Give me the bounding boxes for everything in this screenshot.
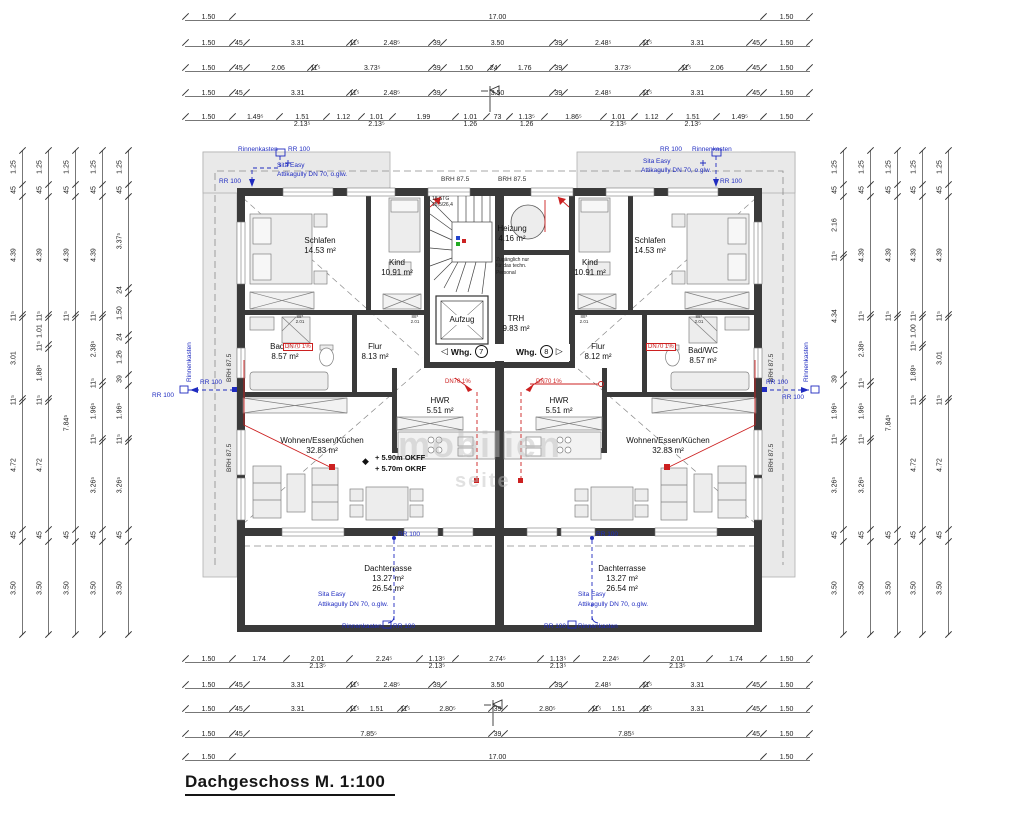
dim-segment: 3.31 [646, 34, 749, 56]
dim-value: 1.25 [11, 160, 18, 174]
room-label-terrasse-left: Dachterrasse13.27 m²26.54 m² [364, 564, 412, 594]
sita-label-top-right: Sita Easy [643, 158, 670, 165]
dim-value: 2.01 [646, 656, 709, 663]
dim-segment: 3.26⁵ [90, 441, 112, 529]
dim-value: 3.50 [443, 682, 552, 689]
gutterbox-label-left-edge: Rinnenkasten [186, 342, 193, 382]
dim-segment: 45 [10, 529, 32, 541]
dim-value: 73 [486, 114, 509, 121]
dim-segment: 1.12 [634, 108, 669, 130]
dim-value: 4.72 [11, 458, 18, 472]
dim-chain-right-3: 1.25 45 4.39 11⁵ 7.84⁵ 45 3.50 [885, 150, 907, 635]
dim-segment: 2.74⁵ [455, 650, 541, 672]
dim-segment: 1.50 [763, 34, 810, 56]
dim-value: 2.48⁵ [564, 682, 642, 689]
dim-chain-left-3: 1.25 45 4.39 11⁵ 7.84⁵ 45 3.50 [63, 150, 85, 635]
dim-value: 1.96⁵ [832, 403, 839, 420]
dim-segment: 45 [90, 184, 112, 196]
dim-subvalue: 2.13⁵ [419, 663, 454, 670]
dim-value: 1.25 [37, 160, 44, 174]
dim-chain-top-1: 1.50 17.00 1.50 [185, 8, 810, 30]
dim-value: 2.80⁵ [404, 706, 492, 713]
rr100-label-right-edge-1: RR 100 [766, 379, 788, 386]
dim-value: 1.50 [763, 65, 810, 72]
dim-segment: 4.72 [36, 401, 58, 528]
dim-value: 45 [64, 531, 71, 539]
dim-segment: 2.01 2.13⁵ [646, 650, 709, 672]
dim-value: 1.49⁵ [716, 114, 763, 121]
dim-value: 1.51 [595, 706, 642, 713]
dim-segment: 1.51 2.13⁵ [279, 108, 326, 130]
dim-value: 45 [911, 531, 918, 539]
dim-value: 3.26⁵ [832, 476, 839, 493]
attika-label-top-right: Attikagully DN 70, o.glw. [641, 167, 711, 174]
dim-value: 2.48⁵ [353, 682, 431, 689]
room-label-flur-right: Flur8.12 m² [584, 342, 611, 362]
dim-value: 3.50 [832, 581, 839, 595]
dim-segment: 4.39 [936, 196, 958, 314]
dim-segment: 2.80⁵ [504, 700, 592, 722]
dim-value: 45 [117, 186, 124, 194]
dim-value: 1.50 [185, 40, 232, 47]
dim-value: 45 [859, 186, 866, 194]
dim-segment: 1.89⁵ [910, 347, 932, 398]
dim-segment: 1.76 [497, 59, 552, 81]
room-label-flur-left: Flur8.13 m² [361, 342, 388, 362]
dim-segment: 2.24⁵ [576, 650, 646, 672]
dim-chain-bottom-3: 1.50 45 3.31 11⁵ 1.51 11⁵ 2.80⁵ 39 2.80⁵… [185, 700, 810, 722]
dim-segment: 45 [63, 184, 85, 196]
dim-value: 1.13⁵ [419, 656, 454, 663]
dim-value: 2.24⁵ [576, 656, 646, 663]
apartment-7-tag: ◁ Whg. 7 [441, 345, 488, 358]
dim-value: 4.39 [937, 248, 944, 262]
gutterbox-label-top-right: Rinnenkasten [692, 146, 732, 153]
dim-segment: 4.72 [10, 401, 32, 528]
dim-segment: 1.50 [185, 700, 232, 722]
dim-value: 2.16 [832, 218, 839, 232]
dim-value: 3.73⁵ [564, 65, 681, 72]
dim-value: 2.01 [286, 656, 349, 663]
dim-value: 2.48⁵ [564, 40, 642, 47]
dim-segment: 45 [116, 529, 138, 541]
dim-value: 1.26 [117, 350, 124, 364]
dim-value: 1.50 [443, 65, 490, 72]
dim-value: 1.50 [185, 114, 232, 121]
dim-value: 3.50 [937, 581, 944, 595]
dim-value: 3.50 [886, 581, 893, 595]
dim-chain-top-5: 1.50 1.49⁵ 1.51 2.13⁵ 1.12 1.01 2.13⁵ 1.… [185, 108, 810, 130]
dim-value: 1.50 [763, 656, 810, 663]
dim-value: 17.00 [232, 14, 763, 21]
dim-segment: 1.25 [936, 150, 958, 184]
dim-value: 3.50 [11, 581, 18, 595]
dim-subvalue: 2.13⁵ [540, 663, 575, 670]
apartment-7-label: Whg. [451, 347, 472, 357]
dim-segment: 2.48⁵ [564, 676, 642, 698]
dim-segment: 2.24⁵ [349, 650, 419, 672]
dim-segment: 1.25 [90, 150, 112, 184]
dim-value: 4.39 [11, 248, 18, 262]
dim-segment: 1.50 [763, 8, 810, 30]
dim-value: 1.50 [763, 682, 810, 689]
dim-segment: 1.50 [185, 59, 232, 81]
dim-value: 3.26⁵ [117, 476, 124, 493]
dim-segment: 1.25 [116, 150, 138, 184]
dim-value: 1.25 [937, 160, 944, 174]
dim-segment: 2.48⁵ [353, 34, 431, 56]
room-label-hwr-left: HWR5.51 m² [426, 396, 453, 416]
dim-value: 1.50 [763, 114, 810, 121]
dim-segment: 3.50 [936, 541, 958, 635]
dim-segment: 1.50 [443, 59, 490, 81]
dim-segment: 1.50 [763, 108, 810, 130]
dim-value: 4.72 [37, 458, 44, 472]
dim-segment: 1.50 [185, 676, 232, 698]
dim-segment: 3.26⁵ [831, 441, 853, 529]
room-label-bad-right: Bad/WC8.57 m² [688, 346, 718, 366]
dim-segment: 3.50 [443, 84, 552, 106]
gutterbox-label-bottom-right: Rinnenkasten [578, 623, 618, 630]
dim-chain-right-4: 1.25 45 4.39 11⁵ 1.00 11⁵ 1.89⁵ 11⁵ 4.72… [910, 150, 932, 635]
rr100-label-top-left: RR 100 [288, 146, 310, 153]
dim-value: 3.31 [246, 40, 349, 47]
dim-segment: 1.88⁵ [36, 348, 58, 399]
dim-value: 1.01 [603, 114, 635, 121]
dim-subvalue: 2.13⁵ [286, 663, 349, 670]
dim-value: 3.31 [646, 682, 749, 689]
dim-segment: 1.99 [392, 108, 454, 130]
dim-value: 45 [117, 531, 124, 539]
dim-segment: 45 [936, 184, 958, 196]
dim-segment: 45 [858, 184, 880, 196]
dim-value: 1.76 [497, 65, 552, 72]
dim-value: 1.12 [634, 114, 669, 121]
dim-value: 1.01 [455, 114, 487, 121]
dim-segment: 1.25 [885, 150, 907, 184]
dim-chain-left-1: 1.25 45 4.39 11⁵ 3.01 11⁵ 4.72 45 3.50 [10, 150, 32, 635]
rr100-label-bottom-left: RR 100 [393, 623, 415, 630]
dim-segment: 1.13⁵ 2.13⁵ [419, 650, 454, 672]
dim-subvalue: 1.26 [509, 121, 544, 128]
dim-chain-left-4: 1.25 45 4.39 11⁵ 2.38⁵ 11⁵ 1.96⁵ 11⁵ 3.2… [90, 150, 112, 635]
dim-segment: 1.96⁵ [116, 385, 138, 438]
dim-value: 7.84⁵ [64, 415, 71, 432]
room-label-hwr-right: HWR5.51 m² [545, 396, 572, 416]
dim-segment: 4.39 [10, 196, 32, 314]
dim-value: 2.74⁵ [455, 656, 541, 663]
door-dim: 88⁵2.01 [411, 314, 420, 324]
dim-segment: 3.73⁵ [564, 59, 681, 81]
room-label-aufzug: Aufzug [448, 315, 477, 325]
staircase [430, 196, 492, 294]
brh-label-top-right: BRH 87.5 [498, 176, 526, 183]
dim-segment: 3.31 [646, 676, 749, 698]
dim-segment: 2.06 [685, 59, 749, 81]
dim-value: 3.31 [646, 706, 749, 713]
dim-segment: 45 [858, 529, 880, 541]
dim-value: 1.25 [117, 160, 124, 174]
dim-segment: 1.25 [10, 150, 32, 184]
dim-segment: 1.96⁵ [90, 385, 112, 438]
dim-segment: 2.48⁵ [564, 84, 642, 106]
access-note-label: Zugänglich nurfür das techn.Personal [496, 257, 529, 276]
dim-subvalue: 2.13⁵ [669, 121, 716, 128]
dim-value: 4.39 [37, 248, 44, 262]
dim-segment: 39 [831, 374, 853, 385]
brh-label-right-wall-1: BRH 87.5 [768, 354, 775, 382]
dim-segment: 3.31 [646, 700, 749, 722]
dim-segment: 1.01 2.13⁵ [361, 108, 393, 130]
dim-segment: 1.51 [353, 700, 400, 722]
dim-value: 45 [11, 531, 18, 539]
watermark-text: seite [455, 470, 511, 493]
dim-value: 3.31 [246, 706, 349, 713]
dim-segment: 1.96⁵ [858, 385, 880, 438]
dim-value: 1.25 [886, 160, 893, 174]
dim-value: 39 [117, 375, 124, 383]
apartment-7-number: 7 [475, 345, 488, 358]
dim-segment: 2.01 2.13⁵ [286, 650, 349, 672]
dim-value: 1.25 [64, 160, 71, 174]
dim-segment: 3.31 [246, 34, 349, 56]
dim-chain-left-5: 1.25 45 3.37⁵ 24 1.50 24 1.26 39 1.96⁵ 1… [116, 150, 138, 635]
dim-segment: 1.74 [709, 650, 763, 672]
arrow-left-icon: ◁ [441, 346, 448, 357]
dim-value: 17.00 [232, 754, 763, 761]
dim-value: 1.96⁵ [91, 403, 98, 420]
dim-segment: 2.80⁵ [404, 700, 492, 722]
dim-segment: 1.50 [116, 293, 138, 333]
dim-segment: 1.96⁵ [831, 385, 853, 438]
dim-value: 1.13⁵ [509, 114, 544, 121]
dim-value: 4.39 [859, 248, 866, 262]
dim-value: 2.06 [246, 65, 310, 72]
dim-segment: 1.13⁵ 2.13⁵ [540, 650, 575, 672]
dim-value: 2.06 [685, 65, 749, 72]
dim-chain-bottom-2: 1.50 45 3.31 11⁵ 2.48⁵ 39 3.50 39 2.48⁵ … [185, 676, 810, 698]
dim-value: 1.51 [279, 114, 326, 121]
dim-value: 1.50 [185, 656, 232, 663]
dim-segment: 1.13⁵ 1.26 [509, 108, 544, 130]
pipe-label-bath-left: DN70 1% [283, 343, 313, 351]
dim-value: 45 [859, 531, 866, 539]
dim-value: 45 [832, 531, 839, 539]
dim-segment: 1.01 2.13⁵ [603, 108, 635, 130]
dim-segment: 3.37⁵ [116, 196, 138, 287]
dim-value: 45 [937, 186, 944, 194]
dim-value: 4.72 [937, 458, 944, 472]
elevation-label: + 5.90m OKFF+ 5.70m OKRF [375, 452, 426, 475]
dim-value: 1.00 [911, 324, 918, 338]
dim-value: 1.50 [185, 682, 232, 689]
dim-chain-top-3: 1.50 45 2.06 11⁵ 3.73⁵ 39 1.50 24 1.76 3… [185, 59, 810, 81]
room-label-wohnen-left: Wohnen/Essen/Küchen32.83 m² [280, 436, 363, 456]
dim-value: 1.86⁵ [544, 114, 602, 121]
rr100-label-top-right-2: RR 100 [720, 178, 742, 185]
dim-segment: 39 [116, 374, 138, 385]
dim-segment: 45 [831, 184, 853, 196]
door-dim: 88⁵2.01 [580, 314, 589, 324]
dim-chain-bottom-4: 1.50 45 7.85⁵ 39 7.85⁵ 45 1.50 [185, 725, 810, 747]
dim-value: 3.26⁵ [859, 476, 866, 493]
dim-value: 4.39 [91, 248, 98, 262]
dim-value: 1.51 [353, 706, 400, 713]
sita-label-terrace-right: Sita Easy [578, 591, 605, 598]
dim-segment: 45 [910, 184, 932, 196]
dim-segment: 1.50 [185, 725, 232, 747]
dim-value: 7.85⁵ [246, 731, 491, 738]
dim-value: 1.12 [326, 114, 361, 121]
dim-value: 1.25 [91, 160, 98, 174]
dim-value: 1.50 [763, 90, 810, 97]
attika-label-terrace-right: Attikagully DN 70, o.glw. [578, 601, 648, 608]
dim-value: 7.85⁵ [504, 731, 749, 738]
dim-segment: 4.39 [858, 196, 880, 314]
attika-label-top-left: Attikagully DN 70, o.glw. [277, 171, 347, 178]
dim-value: 3.37⁵ [117, 233, 124, 250]
stair-data-label: 18 STG18,5/26,4 [432, 196, 453, 209]
dim-chain-bottom-5: 1.50 17.00 1.50 [185, 748, 810, 770]
dim-value: 45 [37, 186, 44, 194]
dim-value: 7.84⁵ [886, 415, 893, 432]
attika-label-terrace-left: Attikagully DN 70, o.glw. [318, 601, 388, 608]
dim-segment: 2.16 [831, 196, 853, 254]
brh-label-top-left: BRH 87.5 [441, 176, 469, 183]
dim-value: 45 [832, 186, 839, 194]
dim-segment: 1.50 [763, 676, 810, 698]
dim-segment: 45 [90, 529, 112, 541]
dim-segment: 45 [36, 529, 58, 541]
door-dim: 88⁵2.01 [695, 314, 704, 324]
dim-segment: 4.39 [63, 196, 85, 314]
dim-segment: 3.26⁵ [858, 441, 880, 529]
dim-chain-top-4: 1.50 45 3.31 11⁵ 2.48⁵ 39 3.50 39 2.48⁵ … [185, 84, 810, 106]
dim-segment: 1.51 2.13⁵ [669, 108, 716, 130]
dim-value: 1.25 [911, 160, 918, 174]
dim-segment: 1.50 [763, 725, 810, 747]
rr100-label-right-edge-2: RR 100 [782, 394, 804, 401]
dim-segment: 3.50 [443, 34, 552, 56]
dim-segment: 4.34 [831, 257, 853, 374]
room-label-terrasse-right: Dachterrasse13.27 m²26.54 m² [598, 564, 646, 594]
dim-value: 1.50 [185, 65, 232, 72]
arrow-right-icon: ▷ [556, 346, 563, 357]
elevation-marker-icon: ◆ [362, 456, 369, 467]
dim-segment: 3.50 [858, 541, 880, 635]
door-dim: 88⁵2.01 [296, 314, 305, 324]
dim-segment: 1.50 [763, 748, 810, 770]
dim-value: 45 [91, 186, 98, 194]
room-label-heizung: Heizung4.16 m² [497, 224, 526, 244]
dim-value: 3.50 [443, 90, 552, 97]
dim-value: 3.31 [646, 40, 749, 47]
dim-segment: 17.00 [232, 8, 763, 30]
dim-value: 4.39 [64, 248, 71, 262]
dim-segment: 7.84⁵ [63, 317, 85, 528]
room-label-kind-left: Kind10.91 m² [381, 258, 413, 278]
dim-chain-bottom-1: 1.50 1.74 2.01 2.13⁵ 2.24⁵ 1.13⁵ 2.13⁵ 2… [185, 650, 810, 672]
dim-value: 3.01 [11, 351, 18, 365]
dim-segment: 45 [116, 184, 138, 196]
dim-segment: 2.48⁵ [353, 84, 431, 106]
dim-segment: 1.50 [185, 748, 232, 770]
dim-segment: 3.50 [910, 541, 932, 635]
dim-segment: 1.12 [326, 108, 361, 130]
dim-chain-right-2: 1.25 45 4.39 11⁵ 2.38⁵ 11⁵ 1.96⁵ 11⁵ 3.2… [858, 150, 880, 635]
dim-segment: 3.50 [885, 541, 907, 635]
dim-value: 1.50 [185, 90, 232, 97]
dim-value: 1.50 [763, 731, 810, 738]
dim-segment: 45 [63, 529, 85, 541]
pipe-label-hwr-right: DN70 1% [536, 379, 562, 385]
pipe-label-bath-right: DN70 1% [646, 343, 676, 351]
dim-segment: 1.50 [763, 700, 810, 722]
dim-value: 45 [64, 186, 71, 194]
sita-label-top-left: Sita Easy [277, 162, 304, 169]
dim-value: 1.50 [117, 307, 124, 321]
dim-segment: 4.39 [885, 196, 907, 314]
dim-value: 45 [91, 531, 98, 539]
room-label-schlafen-left: Schlafen14.53 m² [304, 236, 336, 256]
dim-value: 2.38⁵ [91, 341, 98, 358]
dim-segment: 2.38⁵ [858, 317, 880, 381]
dim-segment: 4.39 [90, 196, 112, 314]
dim-subvalue: 2.13⁵ [646, 663, 709, 670]
dim-value: 3.50 [117, 581, 124, 595]
dim-segment: 1.51 [595, 700, 642, 722]
dim-segment: 3.50 [116, 541, 138, 635]
dim-segment: 1.50 [185, 34, 232, 56]
dim-value: 3.26⁵ [91, 476, 98, 493]
dim-segment: 1.49⁵ [716, 108, 763, 130]
dim-value: 45 [937, 531, 944, 539]
dim-segment: 1.50 [185, 650, 232, 672]
dim-value: 1.01 [37, 324, 44, 338]
room-label-kind-right: Kind10.91 m² [574, 258, 606, 278]
dim-value: 2.48⁵ [353, 40, 431, 47]
dim-value: 1.89⁵ [911, 364, 918, 381]
dim-segment: 45 [36, 184, 58, 196]
dim-value: 4.34 [832, 309, 839, 323]
dim-segment: 3.73⁵ [314, 59, 431, 81]
dim-value: 1.50 [763, 14, 810, 21]
rr100-label-terrace-right-top: RR 100 [596, 531, 618, 538]
dim-value: 1.96⁵ [117, 403, 124, 420]
dim-segment: 1.50 [763, 84, 810, 106]
dim-value: 45 [911, 186, 918, 194]
dim-segment: 45 [831, 529, 853, 541]
dim-chain-top-2: 1.50 45 3.31 11⁵ 2.48⁵ 39 3.50 39 2.48⁵ … [185, 34, 810, 56]
dim-segment: 1.25 [910, 150, 932, 184]
dim-value: 3.31 [246, 90, 349, 97]
dim-segment: 3.31 [246, 84, 349, 106]
dim-segment: 1.25 [858, 150, 880, 184]
dim-segment: 3.31 [646, 84, 749, 106]
dim-value: 4.72 [911, 458, 918, 472]
room-label-trh: TRH9.83 m² [502, 314, 529, 334]
dim-value: 3.50 [911, 581, 918, 595]
dim-value: 3.50 [443, 40, 552, 47]
drawing-title: Dachgeschoss M. 1:100 [185, 772, 395, 796]
dim-subvalue: 2.13⁵ [279, 121, 326, 128]
dim-segment: 4.72 [910, 401, 932, 528]
dim-value: 1.88⁵ [37, 365, 44, 382]
dim-segment: 1.50 [185, 108, 232, 130]
dim-value: 1.74 [709, 656, 763, 663]
dim-segment: 1.26 [116, 340, 138, 374]
dim-value: 3.50 [859, 581, 866, 595]
